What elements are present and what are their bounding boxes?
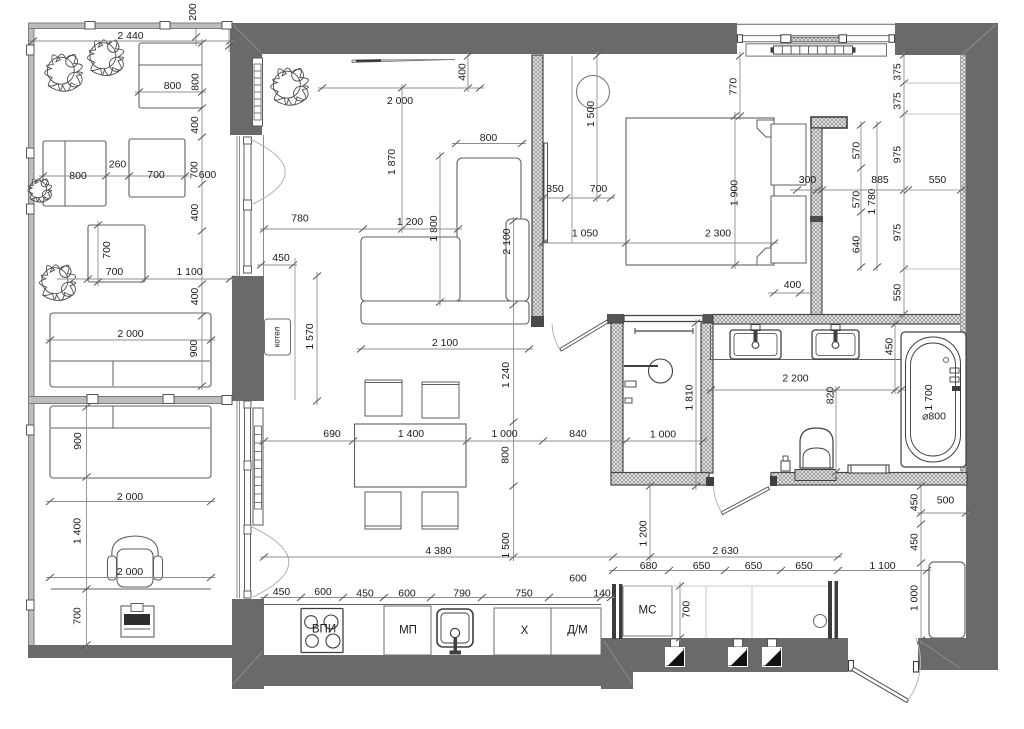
svg-text:1 500: 1 500 [585,101,597,127]
svg-text:1 100: 1 100 [869,560,895,572]
svg-text:800: 800 [189,73,201,91]
svg-text:800: 800 [499,446,511,464]
svg-text:1 100: 1 100 [176,266,202,278]
svg-text:840: 840 [569,428,587,440]
svg-text:260: 260 [109,158,127,170]
svg-text:450: 450 [908,533,920,551]
svg-text:2 000: 2 000 [117,328,143,340]
svg-text:МП: МП [399,625,417,637]
svg-text:⌀800: ⌀800 [922,410,946,422]
svg-text:450: 450 [273,586,291,598]
svg-text:1 700: 1 700 [923,384,935,410]
svg-text:450: 450 [272,252,290,264]
svg-text:котел: котел [273,327,282,348]
svg-text:450: 450 [908,494,920,512]
svg-text:2 000: 2 000 [387,95,413,107]
svg-text:800: 800 [69,170,87,182]
svg-text:650: 650 [745,560,763,572]
svg-text:750: 750 [515,587,533,599]
svg-text:375: 375 [891,63,903,81]
svg-text:Д/М: Д/М [567,625,588,637]
svg-text:300: 300 [799,174,817,186]
svg-text:2 440: 2 440 [117,30,143,42]
svg-text:1 500: 1 500 [500,532,512,558]
svg-text:975: 975 [891,146,903,164]
svg-text:400: 400 [189,204,201,222]
svg-text:700: 700 [147,169,165,181]
svg-text:2 000: 2 000 [117,491,143,503]
svg-text:1 200: 1 200 [637,520,649,546]
svg-text:1 800: 1 800 [428,215,440,241]
svg-text:375: 375 [891,92,903,110]
svg-text:700: 700 [106,266,124,278]
svg-text:700: 700 [680,601,692,619]
svg-text:1 050: 1 050 [572,227,598,239]
svg-text:975: 975 [891,224,903,242]
svg-text:790: 790 [453,587,471,599]
svg-text:1 400: 1 400 [398,428,424,440]
svg-text:820: 820 [824,387,836,405]
svg-text:1 240: 1 240 [500,362,512,388]
svg-text:570: 570 [850,191,862,209]
svg-text:450: 450 [356,587,374,599]
svg-text:900: 900 [188,340,200,358]
svg-text:1 000: 1 000 [491,428,517,440]
svg-text:1 570: 1 570 [304,323,316,349]
svg-text:700: 700 [101,241,113,259]
svg-text:500: 500 [937,494,955,506]
svg-text:550: 550 [929,174,947,186]
svg-text:700: 700 [590,183,608,195]
svg-text:1 000: 1 000 [650,428,676,440]
svg-text:ВПИ: ВПИ [312,624,336,636]
svg-text:2 300: 2 300 [705,227,731,239]
svg-text:650: 650 [795,560,813,572]
svg-text:550: 550 [891,284,903,302]
svg-text:650: 650 [693,560,711,572]
svg-text:1 900: 1 900 [728,180,740,206]
svg-text:770: 770 [727,78,739,96]
svg-text:350: 350 [546,183,564,195]
svg-text:1 870: 1 870 [386,149,398,175]
svg-text:Х: Х [521,625,529,637]
svg-text:1 400: 1 400 [71,518,83,544]
svg-text:2 630: 2 630 [712,545,738,557]
svg-text:900: 900 [72,432,84,450]
svg-text:600: 600 [314,586,332,598]
svg-text:1 200: 1 200 [397,216,423,228]
svg-text:2 100: 2 100 [501,228,513,254]
svg-text:570: 570 [850,142,862,160]
svg-text:2 100: 2 100 [432,337,458,349]
svg-text:1 000: 1 000 [908,585,920,611]
svg-text:800: 800 [164,80,182,92]
svg-text:600: 600 [199,169,217,181]
svg-text:885: 885 [871,174,889,186]
svg-text:800: 800 [480,132,498,144]
svg-text:2 200: 2 200 [782,372,808,384]
svg-text:450: 450 [883,338,895,356]
svg-text:1 810: 1 810 [683,384,695,410]
svg-text:400: 400 [784,279,802,291]
svg-text:2 000: 2 000 [117,566,143,578]
svg-text:780: 780 [291,212,309,224]
svg-text:400: 400 [456,63,468,81]
svg-text:640: 640 [850,236,862,254]
svg-text:140: 140 [593,587,611,599]
svg-text:680: 680 [640,560,658,572]
svg-text:700: 700 [71,607,83,625]
svg-text:600: 600 [398,587,416,599]
svg-text:4 380: 4 380 [425,545,451,557]
svg-text:600: 600 [569,572,587,584]
svg-text:400: 400 [189,116,201,134]
svg-text:200: 200 [187,3,199,21]
svg-text:400: 400 [189,288,201,306]
svg-text:МС: МС [639,605,657,617]
svg-text:1 780: 1 780 [866,188,878,214]
svg-text:690: 690 [323,428,341,440]
